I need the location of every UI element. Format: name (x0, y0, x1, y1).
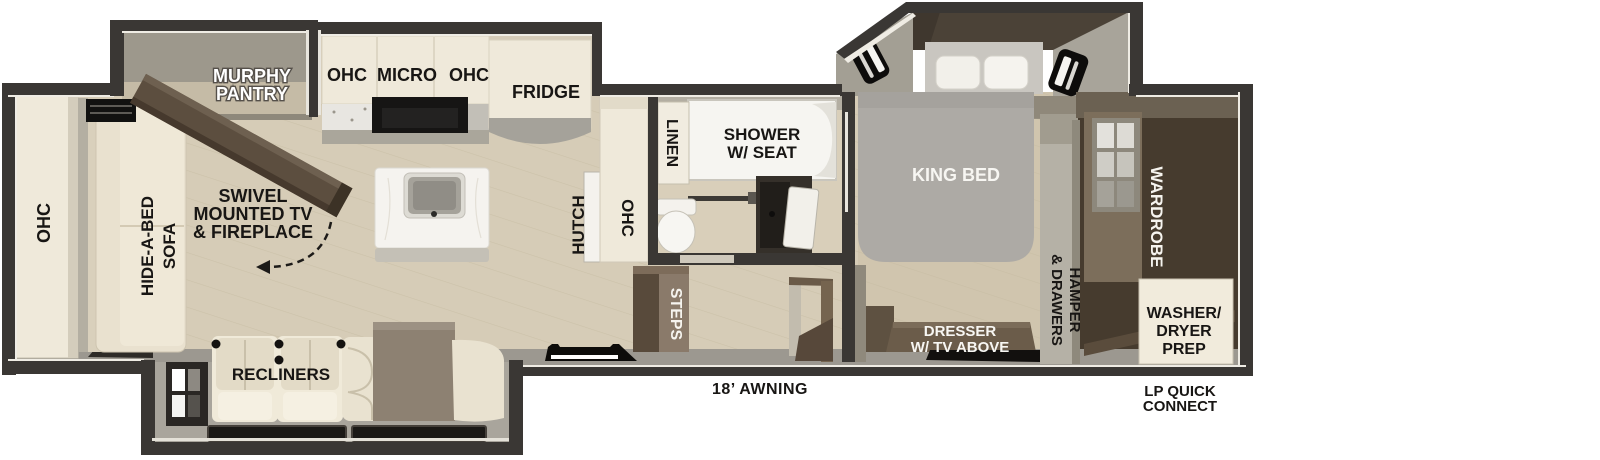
svg-text:WARDROBE: WARDROBE (1147, 166, 1166, 267)
svg-text:MOUNTED TV: MOUNTED TV (194, 204, 313, 224)
svg-text:FRIDGE: FRIDGE (512, 82, 580, 102)
svg-text:SOFA: SOFA (160, 223, 179, 269)
svg-text:18’ AWNING: 18’ AWNING (712, 381, 808, 398)
svg-text:OHC: OHC (449, 65, 489, 85)
svg-text:DRYER: DRYER (1156, 323, 1212, 340)
svg-text:W/ SEAT: W/ SEAT (727, 143, 797, 162)
svg-text:PANTRY: PANTRY (216, 84, 288, 104)
svg-text:MICRO: MICRO (377, 65, 437, 85)
svg-text:DRESSER: DRESSER (924, 323, 997, 340)
svg-text:& FIREPLACE: & FIREPLACE (193, 222, 313, 242)
svg-text:HIDE-A-BED: HIDE-A-BED (138, 196, 157, 296)
svg-text:SHOWER: SHOWER (724, 125, 801, 144)
svg-text:LINEN: LINEN (663, 119, 680, 167)
svg-text:& DRAWERS: & DRAWERS (1048, 254, 1065, 346)
svg-text:CONNECT: CONNECT (1143, 398, 1217, 415)
svg-text:W/ TV ABOVE: W/ TV ABOVE (911, 339, 1010, 356)
svg-text:SWIVEL: SWIVEL (218, 186, 287, 206)
svg-text:HUTCH: HUTCH (569, 195, 588, 255)
svg-text:STEPS: STEPS (667, 288, 684, 341)
svg-text:MURPHY: MURPHY (213, 66, 291, 86)
svg-text:RECLINERS: RECLINERS (232, 365, 330, 384)
svg-text:PREP: PREP (1162, 341, 1206, 358)
svg-text:KING BED: KING BED (912, 165, 1000, 185)
svg-text:OHC: OHC (34, 203, 54, 243)
svg-text:OHC: OHC (327, 65, 367, 85)
svg-text:OHC: OHC (618, 199, 637, 237)
svg-text:WASHER/: WASHER/ (1147, 305, 1222, 322)
svg-text:HAMPER: HAMPER (1066, 267, 1083, 332)
